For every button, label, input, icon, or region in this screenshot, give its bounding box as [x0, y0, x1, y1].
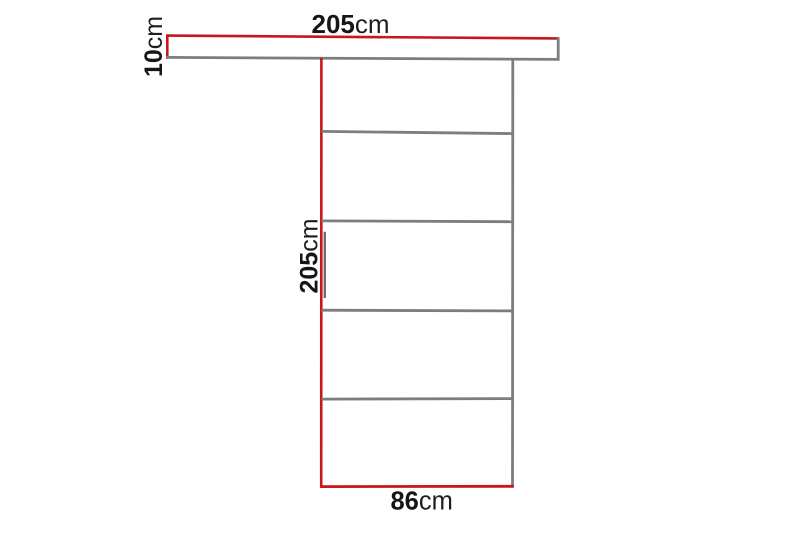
svg-text:205cm: 205cm: [312, 9, 390, 39]
svg-text:10cm: 10cm: [140, 16, 168, 77]
svg-text:205cm: 205cm: [296, 218, 324, 293]
svg-text:86cm: 86cm: [391, 488, 453, 516]
